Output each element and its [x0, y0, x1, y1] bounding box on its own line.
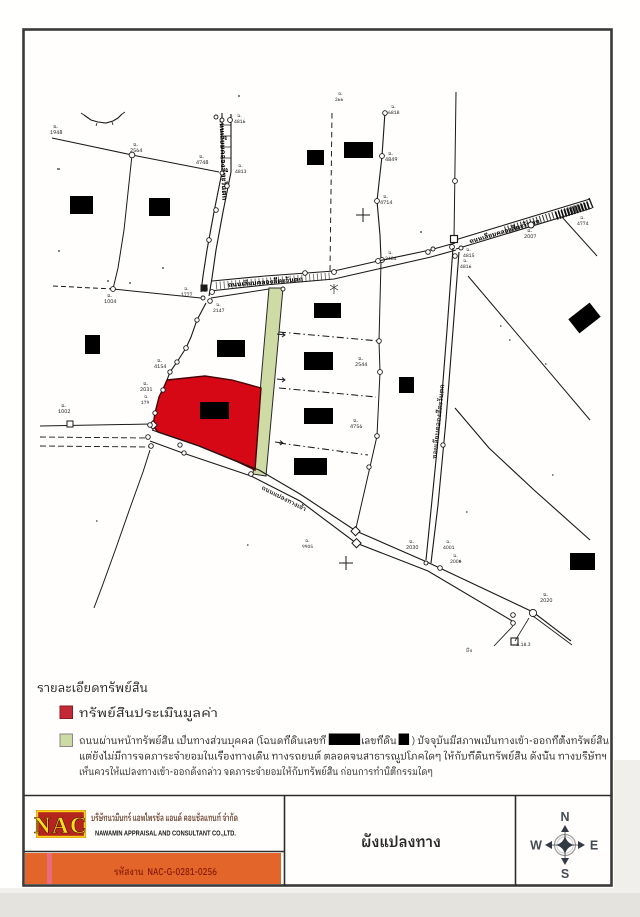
svg-text:N: N: [560, 810, 569, 824]
svg-text:NAC: NAC: [34, 813, 88, 838]
svg-text:W: W: [530, 839, 542, 853]
svg-text:NAWAMIN APPRAISAL AND CONSULTA: NAWAMIN APPRAISAL AND CONSULTANT CO.,LTD…: [95, 829, 236, 838]
svg-text:E: E: [590, 839, 598, 853]
svg-text:S: S: [561, 867, 569, 881]
